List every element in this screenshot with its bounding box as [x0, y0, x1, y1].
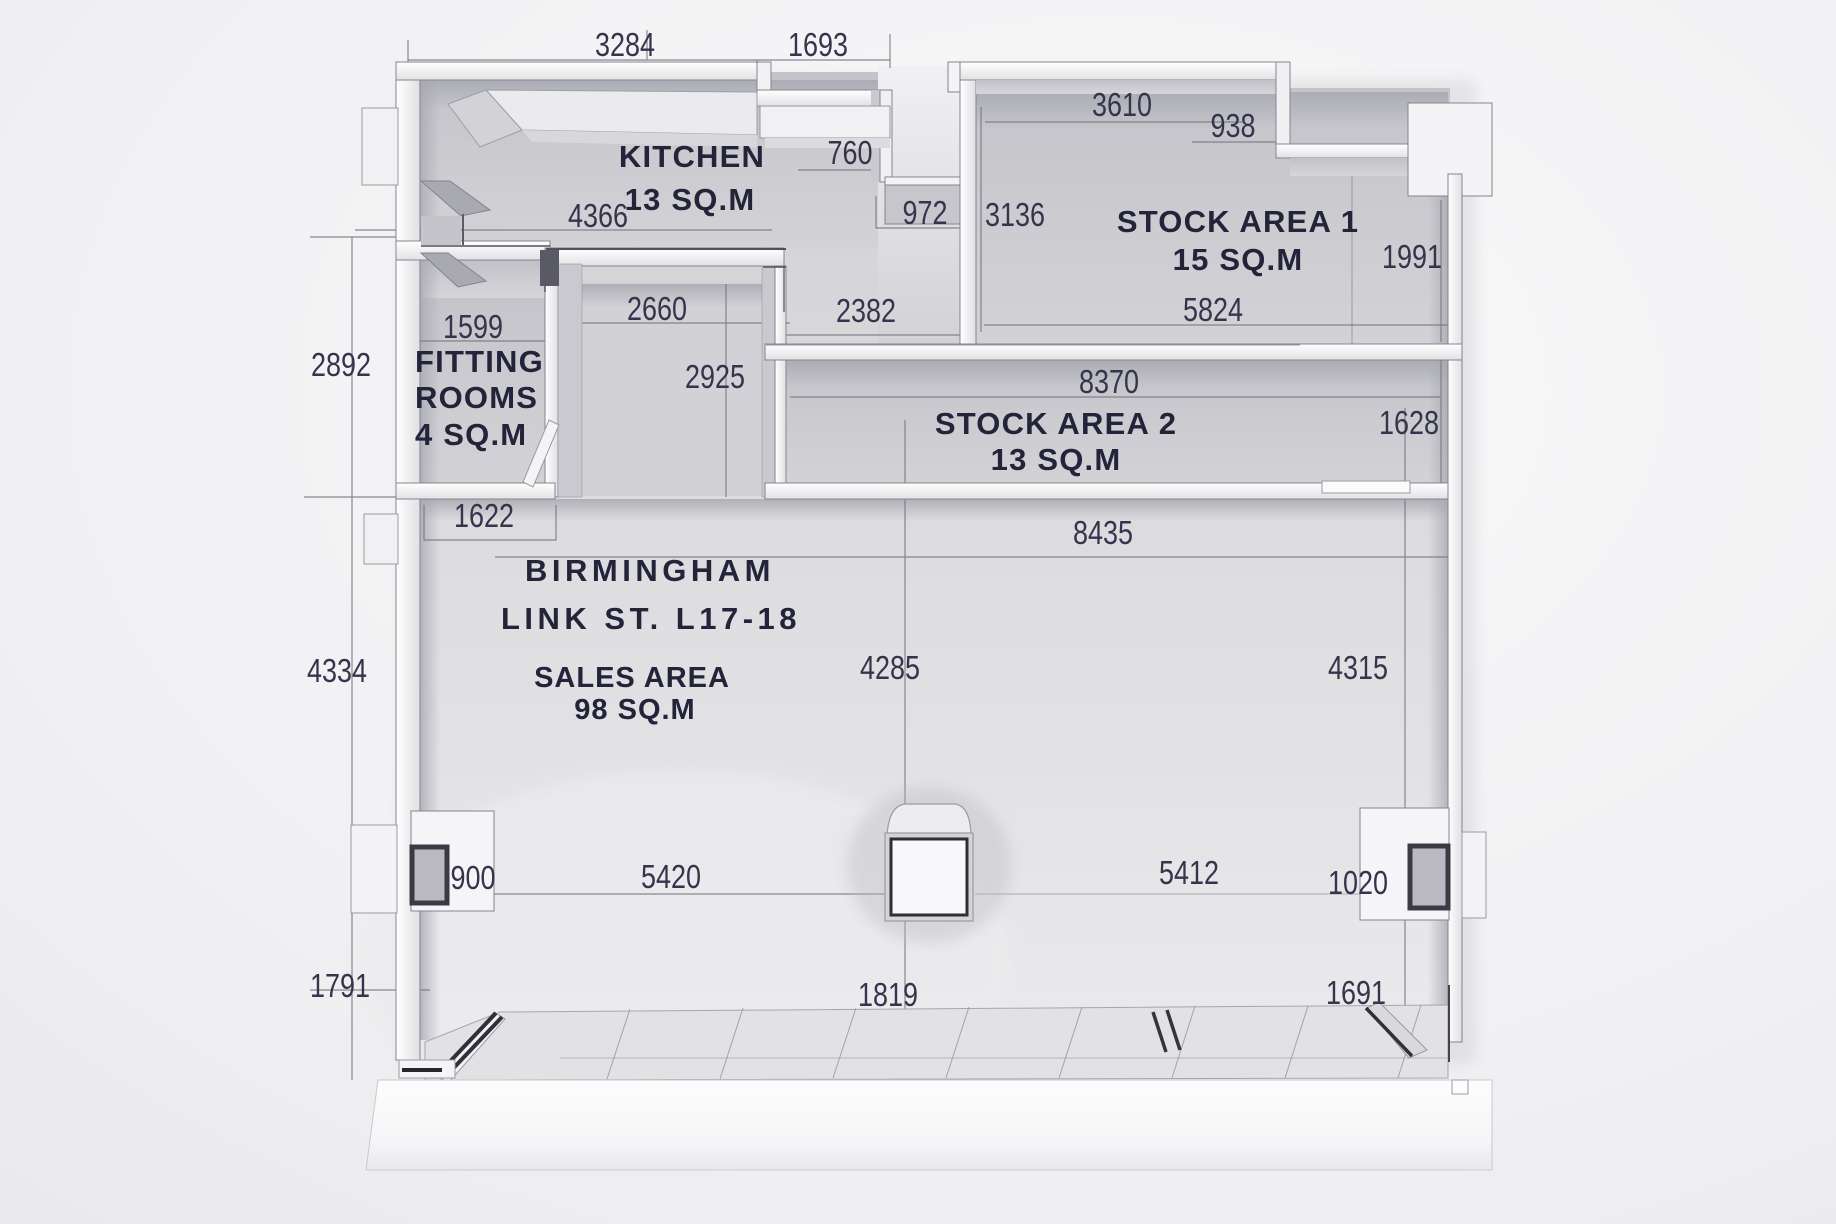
- svg-text:1819: 1819: [858, 976, 918, 1013]
- svg-text:SALES AREA: SALES AREA: [534, 662, 730, 694]
- svg-text:1628: 1628: [1379, 404, 1439, 441]
- svg-text:LINK ST. L17-18: LINK ST. L17-18: [501, 601, 801, 636]
- svg-text:4334: 4334: [307, 652, 367, 689]
- svg-text:BIRMINGHAM: BIRMINGHAM: [525, 553, 775, 588]
- svg-text:FITTING: FITTING: [415, 344, 544, 379]
- svg-text:STOCK AREA 2: STOCK AREA 2: [935, 406, 1177, 441]
- svg-text:760: 760: [828, 134, 873, 171]
- svg-text:3284: 3284: [595, 26, 655, 63]
- svg-text:1020: 1020: [1328, 864, 1388, 901]
- svg-text:2382: 2382: [836, 292, 896, 329]
- svg-text:98 SQ.M: 98 SQ.M: [574, 694, 695, 726]
- svg-text:1691: 1691: [1326, 974, 1386, 1011]
- svg-text:4315: 4315: [1328, 649, 1388, 686]
- svg-text:15 SQ.M: 15 SQ.M: [1173, 242, 1304, 277]
- svg-text:900: 900: [451, 859, 496, 896]
- svg-text:4366: 4366: [568, 197, 628, 234]
- svg-text:8435: 8435: [1073, 514, 1133, 551]
- svg-text:STOCK AREA 1: STOCK AREA 1: [1117, 204, 1359, 239]
- svg-text:4285: 4285: [860, 649, 920, 686]
- svg-text:1791: 1791: [310, 967, 370, 1004]
- svg-text:3610: 3610: [1092, 86, 1152, 123]
- svg-text:1991: 1991: [1382, 238, 1442, 275]
- svg-text:2925: 2925: [685, 358, 745, 395]
- svg-text:2892: 2892: [311, 346, 371, 383]
- svg-text:5824: 5824: [1183, 291, 1243, 328]
- svg-text:13 SQ.M: 13 SQ.M: [625, 182, 756, 217]
- svg-text:1599: 1599: [443, 308, 503, 345]
- svg-text:13 SQ.M: 13 SQ.M: [991, 442, 1122, 477]
- svg-text:972: 972: [903, 194, 948, 231]
- svg-text:KITCHEN: KITCHEN: [619, 139, 765, 174]
- svg-text:8370: 8370: [1079, 363, 1139, 400]
- svg-text:4 SQ.M: 4 SQ.M: [415, 417, 527, 452]
- svg-text:1693: 1693: [788, 26, 848, 63]
- svg-text:3136: 3136: [985, 196, 1045, 233]
- svg-text:ROOMS: ROOMS: [415, 380, 538, 415]
- svg-text:1622: 1622: [454, 497, 514, 534]
- svg-text:5420: 5420: [641, 858, 701, 895]
- svg-text:938: 938: [1211, 107, 1256, 144]
- svg-text:2660: 2660: [627, 290, 687, 327]
- svg-text:5412: 5412: [1159, 854, 1219, 891]
